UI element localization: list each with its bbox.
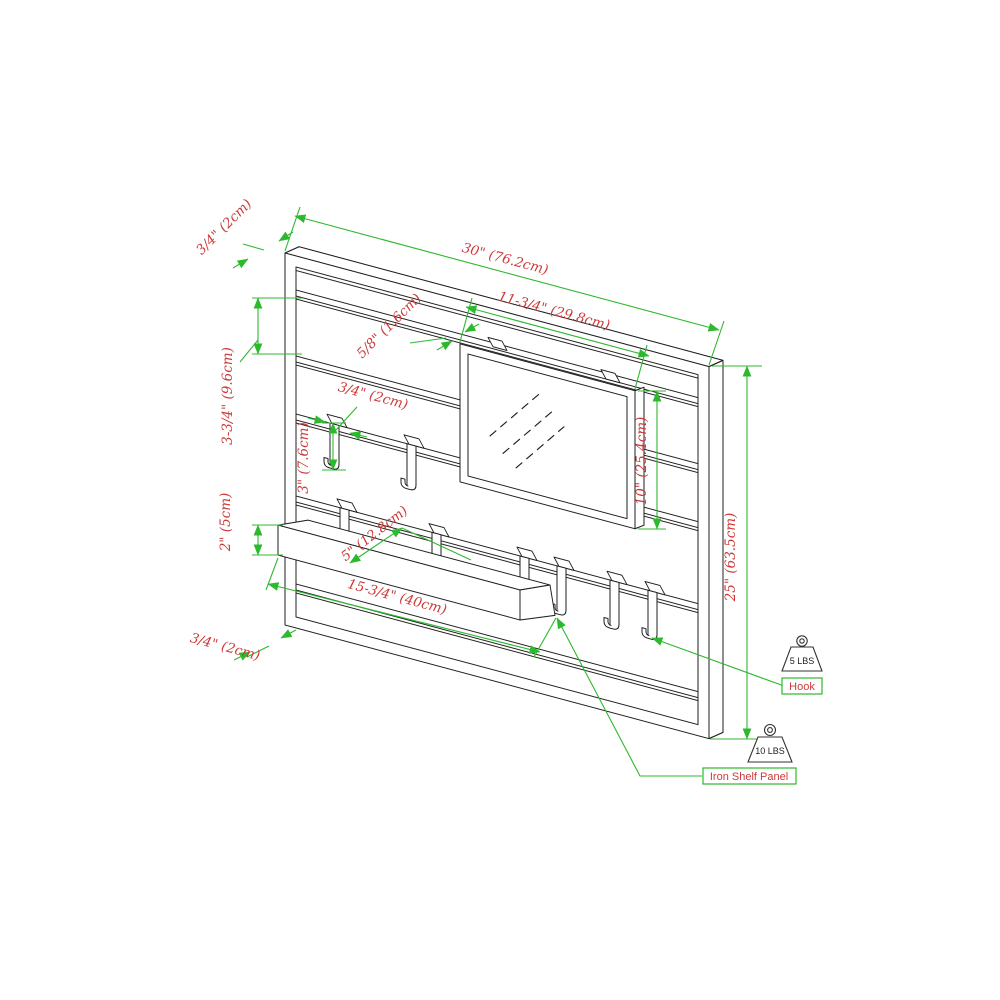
weight-icon-10lbs: 10 LBS xyxy=(748,725,792,763)
dim-rail-gap-text: 3-3/4" (9.6cm) xyxy=(220,347,236,445)
diagram-canvas: 3/4" (2cm) 30" (76.2cm) 11-3/4" (29.8cm)… xyxy=(0,0,1000,1000)
hook-capacity-label: 5 LBS xyxy=(790,656,815,666)
dim-overall-height-text: 25" (63.5cm) xyxy=(723,513,739,603)
dim-frame-bottom-text: 3/4" (2cm) xyxy=(188,630,261,664)
dim-shelf-height: 2" (5cm) xyxy=(218,493,283,555)
dim-frame-top-text: 3/4" (2cm) xyxy=(193,196,255,258)
dim-frame-bottom: 3/4" (2cm) xyxy=(188,630,296,664)
shelf-capacity-label: 10 LBS xyxy=(755,746,785,756)
dim-hook-height-text: 3" (7.6cm) xyxy=(296,422,312,493)
dim-mirror-height-text: 10" (25.4cm) xyxy=(634,417,650,506)
dim-shelf-height-text: 2" (5cm) xyxy=(218,493,234,553)
hook-label: Hook xyxy=(789,681,815,693)
weight-icon-5lbs: 5 LBS xyxy=(782,636,822,671)
panel-right-face xyxy=(709,357,723,743)
dim-frame-top: 3/4" (2cm) xyxy=(193,196,293,268)
dimension-drawing: 3/4" (2cm) 30" (76.2cm) 11-3/4" (29.8cm)… xyxy=(0,0,1000,1000)
shelf-label: Iron Shelf Panel xyxy=(710,771,788,783)
